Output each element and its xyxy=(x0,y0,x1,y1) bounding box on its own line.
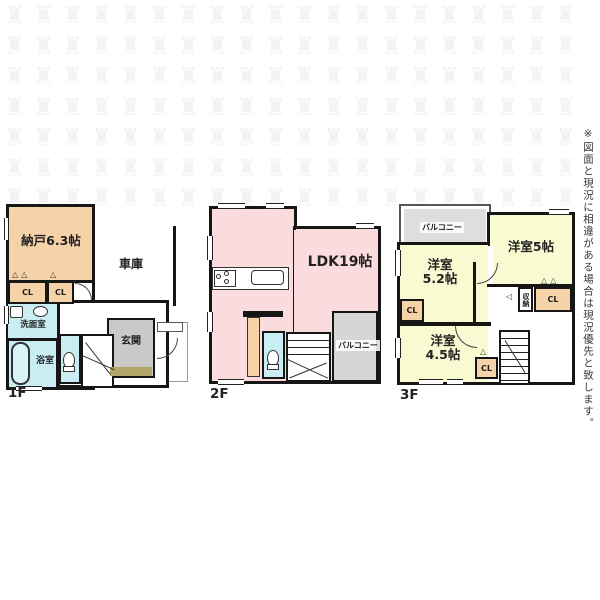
garage-label: 車庫 xyxy=(108,258,154,272)
room-45-line1: 洋室 xyxy=(408,334,478,348)
room-ldk-label: LDK19帖 xyxy=(298,254,382,270)
window xyxy=(218,203,245,209)
balcony-3f-label: バルコニー xyxy=(420,222,464,233)
porch-step xyxy=(157,322,183,332)
floor-label-2f: 2F xyxy=(210,386,229,402)
window xyxy=(207,312,213,332)
floor-label-1f: 1F xyxy=(8,385,27,401)
stairs-2f xyxy=(286,332,331,360)
window xyxy=(207,236,213,260)
toilet-tank-icon xyxy=(63,366,75,372)
window xyxy=(4,218,9,240)
sink-icon xyxy=(33,306,48,317)
disclaimer-text: ※図面と現況に相違がある場合は現況優先と致します。 xyxy=(581,128,596,473)
closet-3f-left-label: CL xyxy=(407,306,418,315)
room-nando-label: 納戸6.3帖 xyxy=(10,234,92,248)
window xyxy=(419,379,443,385)
bathtub-icon xyxy=(11,342,30,385)
room-genkan-label: 玄関 xyxy=(111,336,151,348)
cabinet xyxy=(247,317,260,377)
room-52-label: 洋室 5.2帖 xyxy=(405,258,475,287)
closet-3f-left: CL xyxy=(400,299,424,322)
burner-icon xyxy=(224,279,229,284)
folding-door-icon: △ xyxy=(50,270,59,279)
floor-label-3f: 3F xyxy=(400,387,419,403)
floorplan-page: { "disclaimer": "※図面と現況に相違がある場合は現況優先と致しま… xyxy=(0,0,600,600)
window xyxy=(395,338,401,358)
burner-icon xyxy=(216,274,221,279)
closet-3f-bottom-label: CL xyxy=(481,364,492,373)
laundry-pan-icon xyxy=(10,306,23,318)
closet-1f-b-label: CL xyxy=(55,288,66,297)
window xyxy=(266,203,284,209)
closet-3f-mid: CL xyxy=(534,287,572,312)
room-52-line2: 5.2帖 xyxy=(405,272,475,286)
room-52-line1: 洋室 xyxy=(405,258,475,272)
closet-1f-a: CL xyxy=(8,281,47,304)
folding-door-icon: △△ xyxy=(541,276,559,285)
closet-3f-mid-label: CL xyxy=(548,295,559,304)
room-45-label: 洋室 4.5帖 xyxy=(408,334,478,363)
door-swing-icon: ◁ xyxy=(506,292,512,301)
window xyxy=(549,209,569,215)
balcony-2f-label: バルコニー xyxy=(336,340,380,351)
room-45-line2: 4.5帖 xyxy=(408,348,478,362)
closet-1f-a-label: CL xyxy=(22,288,33,297)
window xyxy=(447,379,463,385)
closet-3f-bottom: CL xyxy=(475,357,498,379)
room-bath-label: 浴室 xyxy=(31,356,59,366)
window xyxy=(356,223,374,229)
wall-segment xyxy=(487,284,575,287)
wall-segment xyxy=(243,311,283,317)
toilet-tank-icon xyxy=(267,364,279,370)
wall-segment xyxy=(397,322,491,326)
closet-1f-b: CL xyxy=(47,281,74,304)
kitchen-sink-icon xyxy=(251,270,284,285)
window xyxy=(218,379,244,385)
folding-door-icon: △ xyxy=(480,347,486,356)
boundary-line xyxy=(173,226,176,306)
genkan-step xyxy=(110,367,152,376)
folding-door-icon: △△ xyxy=(12,270,30,279)
room-senmen-label: 洗面室 xyxy=(9,321,57,331)
storage-shuno: 収納 xyxy=(518,287,533,312)
room-5-label: 洋室5帖 xyxy=(496,240,566,254)
window xyxy=(395,250,401,276)
burner-icon xyxy=(224,271,229,276)
watermark-pattern: ♜♜♜♜♜♜♜♜♜♜♜♜♜♜♜♜♜♜♜♜♜♜♜♜♜♜♜♜♜♜♜♜♜♜♜♜♜♜♜♜… xyxy=(0,0,580,214)
